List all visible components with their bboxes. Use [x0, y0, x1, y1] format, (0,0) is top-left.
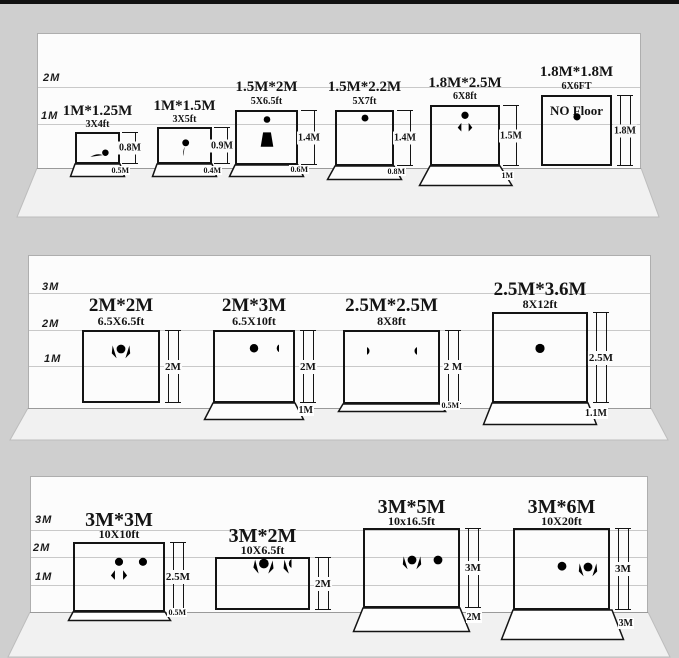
height-dimension: 0.8M [122, 132, 138, 164]
height-dimension: 1.5M [503, 105, 519, 166]
man-silhouette-icon [455, 111, 475, 164]
backdrop-ft-label: 3X4ft [86, 120, 110, 130]
backdrop-size-label: 1.8M*1.8M [540, 65, 613, 80]
two-people-silhouette-icon [513, 343, 567, 409]
height-dimension: 1.4M [301, 110, 317, 165]
floor-depth-label: 0.6M [289, 165, 309, 174]
floor-depth-label: 0.5M [167, 608, 187, 617]
backdrop-ft-label: 5X6.5ft [251, 97, 282, 107]
floor-depth-label: 3M [618, 618, 634, 629]
height-dimension: 1.4M [397, 110, 413, 166]
backdrop-item: 3M*3M 10X10ft 2.5M 0.5M [73, 542, 165, 612]
three-people-silhouette-icon [84, 557, 154, 616]
backdrop-item: 1.8M*1.8M 6X6FT NO Floor 1.8M [541, 95, 612, 166]
height-dimension: 2M [315, 557, 331, 610]
floor-mat [67, 611, 172, 622]
backdrop-size-label: 1.8M*2.5M [428, 76, 501, 91]
backdrop-item: 2M*2M 6.5X6.5ft 2M [82, 330, 160, 403]
two-dancers-silhouette-icon [234, 557, 291, 627]
backdrop-item: 3M*5M 10x16.5ft 3M 2M [363, 528, 460, 608]
backdrop-item: 2M*3M 6.5X10ft 2M 1M [213, 330, 295, 403]
backdrop-size-label: 1M*1.5M [153, 99, 215, 114]
floor-depth-label: 1.1M [584, 408, 608, 419]
backdrop-size-chart: 2M 1M 1M*1.25M 3X4ft 0.8M 0.5M 1M*1.5M 3… [0, 0, 679, 658]
backdrop-size-label: 1.5M*2.2M [328, 80, 401, 95]
backdrop-size-label: 2M*3M [222, 296, 286, 315]
height-dimension: 3M [465, 528, 481, 608]
axis-label: 1M [35, 571, 52, 583]
floor-depth-label: 0.5M [110, 166, 130, 175]
backdrop-ft-label: 6X6FT [562, 82, 592, 92]
backdrop-item: 3M*2M 10X6.5ft 2M [215, 557, 310, 610]
backdrop-item: 1.5M*2.2M 5X7ft 1.4M 0.8M [335, 110, 394, 166]
baby-silhouette-icon [86, 148, 110, 161]
top-border-bar [0, 0, 679, 4]
floor-mat [337, 403, 447, 413]
backdrop-ft-label: 8X12ft [523, 298, 558, 310]
backdrop-ft-label: 5X7ft [353, 97, 377, 107]
floor-mat [482, 402, 598, 426]
two-people-silhouette-icon [367, 346, 417, 407]
floor-depth-label: 0.8M [386, 167, 406, 176]
floor-depth-label: 0.5M [440, 401, 460, 410]
height-dimension: 2 M [445, 330, 461, 404]
backdrop-item: 3M*6M 10X20ft 3M 3M [513, 528, 610, 610]
floor-mat [203, 402, 305, 421]
floor-depth-label: 2M [466, 612, 482, 623]
backdrop-ft-label: 8X8ft [377, 315, 406, 327]
floor-depth-label: 1M [500, 171, 514, 180]
man-silhouette-icon [109, 343, 133, 407]
axis-label: 3M [42, 281, 59, 293]
axis-label: 2M [43, 72, 60, 84]
backdrop-item: 1.8M*2.5M 6X8ft 1.5M 1M [430, 105, 500, 166]
floor-depth-label: 0.4M [202, 166, 222, 175]
floor-depth-label: 1M [298, 405, 314, 416]
man-silhouette-icon [355, 114, 374, 164]
backdrop-item: 1M*1.25M 3X4ft 0.8M 0.5M [75, 132, 120, 164]
toddler-silhouette-icon [174, 139, 195, 161]
backdrop-size-label: 2.5M*2.5M [345, 296, 438, 315]
axis-label: 1M [41, 110, 58, 122]
axis-label: 1M [44, 353, 61, 365]
height-dimension: 2.5M [593, 312, 609, 403]
backdrop-size-label: 2M*2M [89, 296, 153, 315]
backdrop-size-label: 1.5M*2M [235, 80, 297, 95]
height-dimension: 1.8M [617, 95, 633, 166]
man-silhouette-icon [567, 112, 587, 164]
axis-label: 2M [42, 318, 59, 330]
backdrop-ft-label: 6X8ft [453, 92, 477, 102]
backdrop-ft-label: 10X6.5ft [241, 544, 285, 556]
height-dimension: 3M [615, 528, 631, 610]
backdrop-size-label: 1M*1.25M [63, 104, 133, 119]
height-dimension: 2.5M [170, 542, 186, 612]
backdrop-ft-label: 10x16.5ft [388, 515, 435, 527]
backdrop-ft-label: 6.5X6.5ft [98, 315, 145, 327]
height-dimension: 2M [165, 330, 181, 403]
backdrop-item: 1M*1.5M 3X5ft 0.9M 0.4M [157, 127, 212, 164]
two-people-silhouette-icon [229, 343, 279, 405]
floor-mat [500, 609, 625, 641]
axis-label: 2M [33, 542, 50, 554]
axis-label: 3M [35, 514, 52, 526]
floor-mat [352, 607, 471, 633]
backdrop-item: 2.5M*2.5M 8X8ft 2 M 0.5M [343, 330, 440, 404]
backdrop-ft-label: 10X20ft [541, 515, 582, 527]
height-dimension: 2M [300, 330, 316, 403]
height-dimension: 0.9M [214, 127, 230, 164]
woman-silhouette-icon [258, 115, 276, 163]
backdrop-item: 2.5M*3.6M 8X12ft 2.5M 1.1M [492, 312, 588, 403]
backdrop-ft-label: 10X10ft [99, 528, 140, 540]
backdrop-item: 1.5M*2M 5X6.5ft 1.4M 0.6M [235, 110, 298, 165]
backdrop-ft-label: 3X5ft [173, 115, 197, 125]
backdrop-ft-label: 6.5X10ft [232, 315, 276, 327]
